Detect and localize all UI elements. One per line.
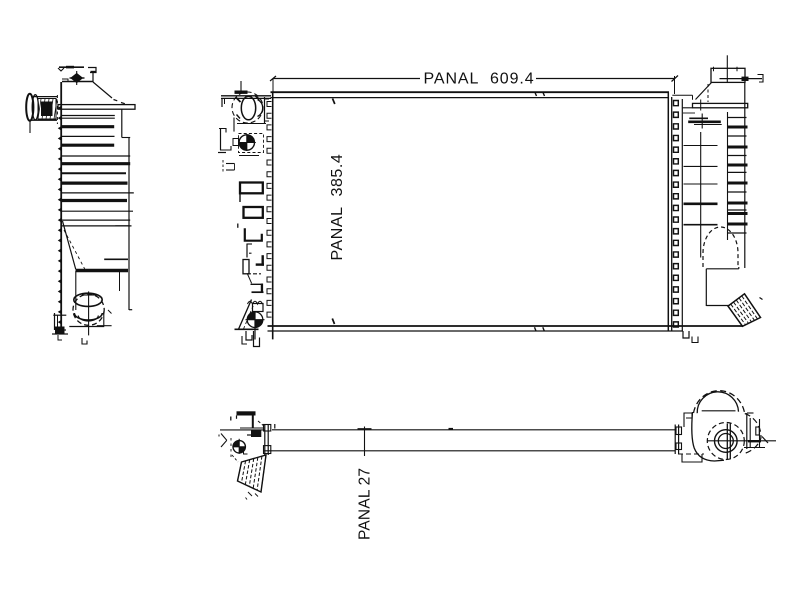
svg-text:PANAL 609.4: PANAL 609.4 bbox=[424, 71, 535, 88]
svg-text:PANAL 385.4: PANAL 385.4 bbox=[329, 154, 346, 261]
svg-text:PANAL 27: PANAL 27 bbox=[357, 468, 374, 540]
